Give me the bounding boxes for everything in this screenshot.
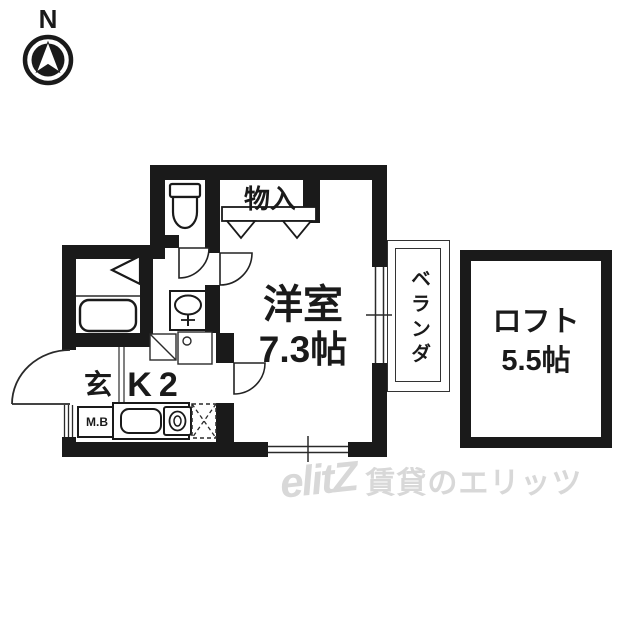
wall-segment xyxy=(140,245,153,345)
stove-icon xyxy=(164,407,191,435)
wall-segment xyxy=(205,180,220,253)
wall-segment xyxy=(165,235,179,248)
meter-box-label: M.B xyxy=(78,407,116,437)
kitchen-label: K2 xyxy=(118,366,194,405)
stove-burner-icon xyxy=(174,416,181,426)
closet-door-triangle xyxy=(283,221,311,238)
kitchen-sink-icon xyxy=(121,409,161,433)
balcony-label: ベランダ xyxy=(404,252,434,384)
wall-segment xyxy=(150,165,387,180)
toilet-icon xyxy=(173,197,197,228)
kitchen-counter xyxy=(113,403,189,439)
entrance-label: 玄 xyxy=(84,363,116,403)
wall-segment xyxy=(372,165,387,267)
watermark: elitZ 賃貸のエリッツ xyxy=(280,456,582,504)
compass-north-label: N xyxy=(33,4,63,35)
watermark-logo: elitZ xyxy=(278,452,359,508)
entrance-door-arc xyxy=(12,350,70,404)
storage-room-label: 物入 xyxy=(222,179,318,216)
drain-outlet-icon xyxy=(183,337,191,345)
washing-machine-diagonal xyxy=(150,334,176,360)
loft-size: 5.5帖 xyxy=(471,337,601,379)
wall-segment xyxy=(150,165,165,245)
wall-segment xyxy=(216,403,234,442)
wall-segment xyxy=(62,437,76,457)
toilet-tank-icon xyxy=(170,184,200,197)
washing-machine-pan xyxy=(178,332,212,364)
bathroom-door-triangle xyxy=(112,256,140,284)
closet-door-triangle xyxy=(227,221,255,238)
wall-segment xyxy=(205,285,220,333)
refrigerator-space-cross xyxy=(192,404,216,438)
loft-label: ロフト xyxy=(471,298,601,340)
western-room-size: 7.3帖 xyxy=(228,319,378,373)
wall-segment xyxy=(62,333,153,347)
washbasin-icon xyxy=(175,296,201,315)
washing-machine-space xyxy=(150,334,176,360)
stove-burner-icon xyxy=(170,412,186,431)
watermark-text: 賃貸のエリッツ xyxy=(365,458,582,502)
bathtub-icon xyxy=(80,300,136,331)
refrigerator-space-cross xyxy=(192,404,216,438)
north-arrow-icon xyxy=(21,33,75,87)
washbasin-counter xyxy=(170,291,206,330)
refrigerator-space xyxy=(192,404,216,438)
